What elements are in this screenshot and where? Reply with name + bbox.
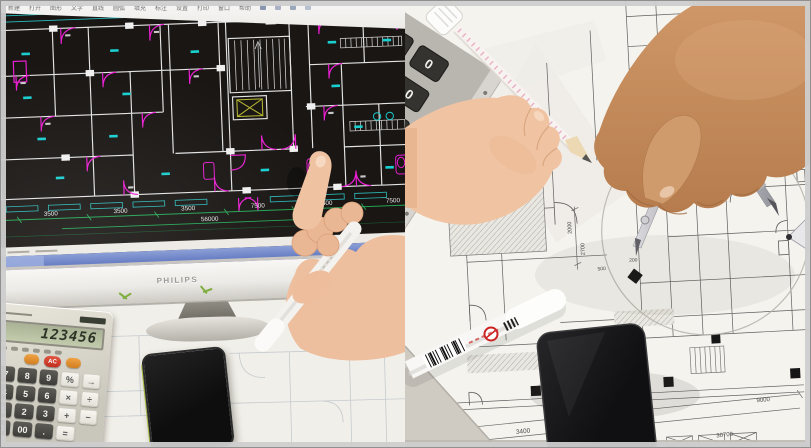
menu-item: 图形 — [50, 3, 62, 12]
calculator-key: − — [78, 409, 98, 426]
calculator-keypad: 7 8 9 % → 4 5 6 × ÷ 1 2 3 + − 0 00 . = — [0, 365, 101, 443]
plant-sprig — [118, 295, 132, 304]
dim-label: 3500 — [44, 210, 59, 218]
smartphone-right — [536, 323, 659, 448]
dim-label: 2000 — [567, 221, 574, 234]
menu-item: 打印 — [197, 3, 209, 12]
calculator-brand — [2, 311, 32, 316]
calculator-key: 0 — [0, 419, 11, 436]
dim-label: 3500 — [318, 200, 333, 208]
calculator-key: 8 — [17, 367, 37, 384]
menu-item: 设置 — [176, 3, 188, 12]
calculator-key: ÷ — [80, 391, 100, 408]
calculator-key: = — [55, 425, 75, 442]
menu-item: 填充 — [134, 3, 146, 12]
calculator-gt-key — [24, 354, 40, 365]
dim-label: 7500 — [386, 197, 401, 205]
menu-item: 标注 — [155, 3, 167, 12]
menu-item: 新建 — [8, 3, 20, 12]
calculator-key: 2 — [14, 403, 34, 420]
photo-collage: 3500 3500 3500 7500 3500 7500 56000 新建 — [0, 0, 811, 448]
calculator-key: 3 — [36, 405, 56, 422]
calculator-key: 4 — [0, 383, 14, 400]
calculator-key: + — [57, 407, 77, 424]
calculator-key: 00 — [13, 421, 33, 438]
dim-label: 7500 — [251, 202, 266, 210]
dim-label: 3500 — [113, 208, 128, 216]
toolbar-icon — [290, 4, 296, 10]
menu-item: 圆弧 — [113, 3, 125, 12]
hand-shadow — [535, 235, 795, 315]
monitor-screen: 3500 3500 3500 7500 3500 7500 56000 — [0, 0, 405, 272]
cad-floorplan: 3500 3500 3500 7500 3500 7500 56000 — [0, 0, 405, 248]
calculator: 123456 AC 7 8 9 % → 4 5 6 × ÷ 1 2 3 — [0, 302, 114, 448]
monitor-brand-logo: PHILIPS — [156, 275, 198, 286]
menu-item: 帮助 — [239, 3, 251, 12]
calculator-key: 7 — [0, 365, 16, 382]
calculator-key: 6 — [37, 387, 57, 404]
calculator-key: 9 — [39, 369, 59, 386]
dim-label: 3500 — [181, 205, 196, 213]
calculator-ce-key — [66, 357, 82, 368]
smartphone — [141, 346, 235, 448]
blueprint-scene: 3400 9000 30700 2700 2000 500 200 — [405, 0, 811, 448]
calculator-key: × — [59, 389, 79, 406]
menu-item: 直线 — [92, 3, 104, 12]
menu-item: 打开 — [29, 3, 41, 12]
calculator-key: → — [81, 373, 101, 390]
toolbar-icon — [275, 4, 281, 10]
toolbar-icon — [260, 4, 266, 10]
calculator-key: % — [60, 371, 80, 388]
calculator-display-value: 123456 — [40, 326, 98, 347]
calculator-solar-panel — [80, 316, 106, 324]
right-photo-blueprint-hands: 3400 9000 30700 2700 2000 500 200 — [405, 0, 811, 448]
calculator-key: 5 — [16, 385, 36, 402]
calculator-key: . — [34, 423, 54, 440]
toolbar-icon — [305, 4, 311, 10]
menu-item: 窗口 — [218, 3, 230, 12]
left-photo-cad-monitor: 3500 3500 3500 7500 3500 7500 56000 新建 — [0, 0, 405, 448]
calculator-key: 1 — [0, 401, 13, 418]
menu-item: 文字 — [71, 3, 83, 12]
calculator-ac-key: AC — [44, 355, 62, 367]
dim-total-label: 56000 — [201, 216, 219, 224]
